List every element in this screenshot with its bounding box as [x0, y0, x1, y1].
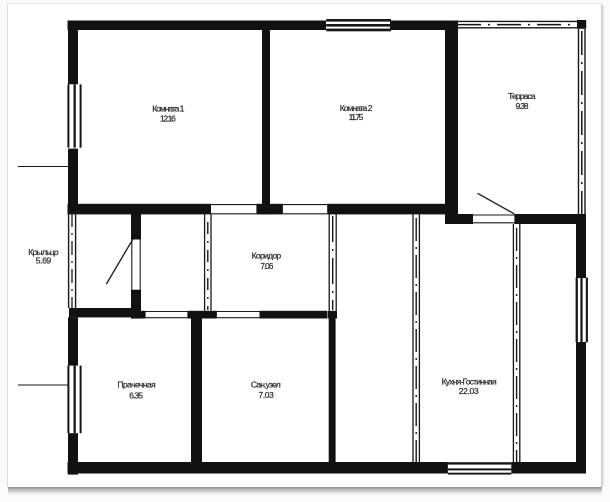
svg-text:7.06: 7.06: [260, 261, 273, 271]
svg-text:12.16: 12.16: [160, 113, 176, 123]
svg-text:11.75: 11.75: [349, 112, 364, 122]
svg-text:Коридор: Коридор: [252, 251, 282, 261]
svg-text:9.38: 9.38: [515, 101, 528, 111]
svg-text:5.69: 5.69: [36, 255, 52, 265]
svg-text:22.03: 22.03: [459, 386, 479, 396]
svg-text:6.35: 6.35: [129, 390, 143, 400]
svg-text:Комната 1: Комната 1: [152, 104, 184, 114]
svg-text:Терраса: Терраса: [508, 91, 536, 101]
svg-text:Кухня-Гостинная: Кухня-Гостинная: [442, 377, 497, 387]
svg-text:Сан.узел: Сан.узел: [251, 380, 281, 390]
svg-text:Прачечная: Прачечная: [117, 380, 156, 390]
svg-text:7.03: 7.03: [258, 390, 274, 400]
